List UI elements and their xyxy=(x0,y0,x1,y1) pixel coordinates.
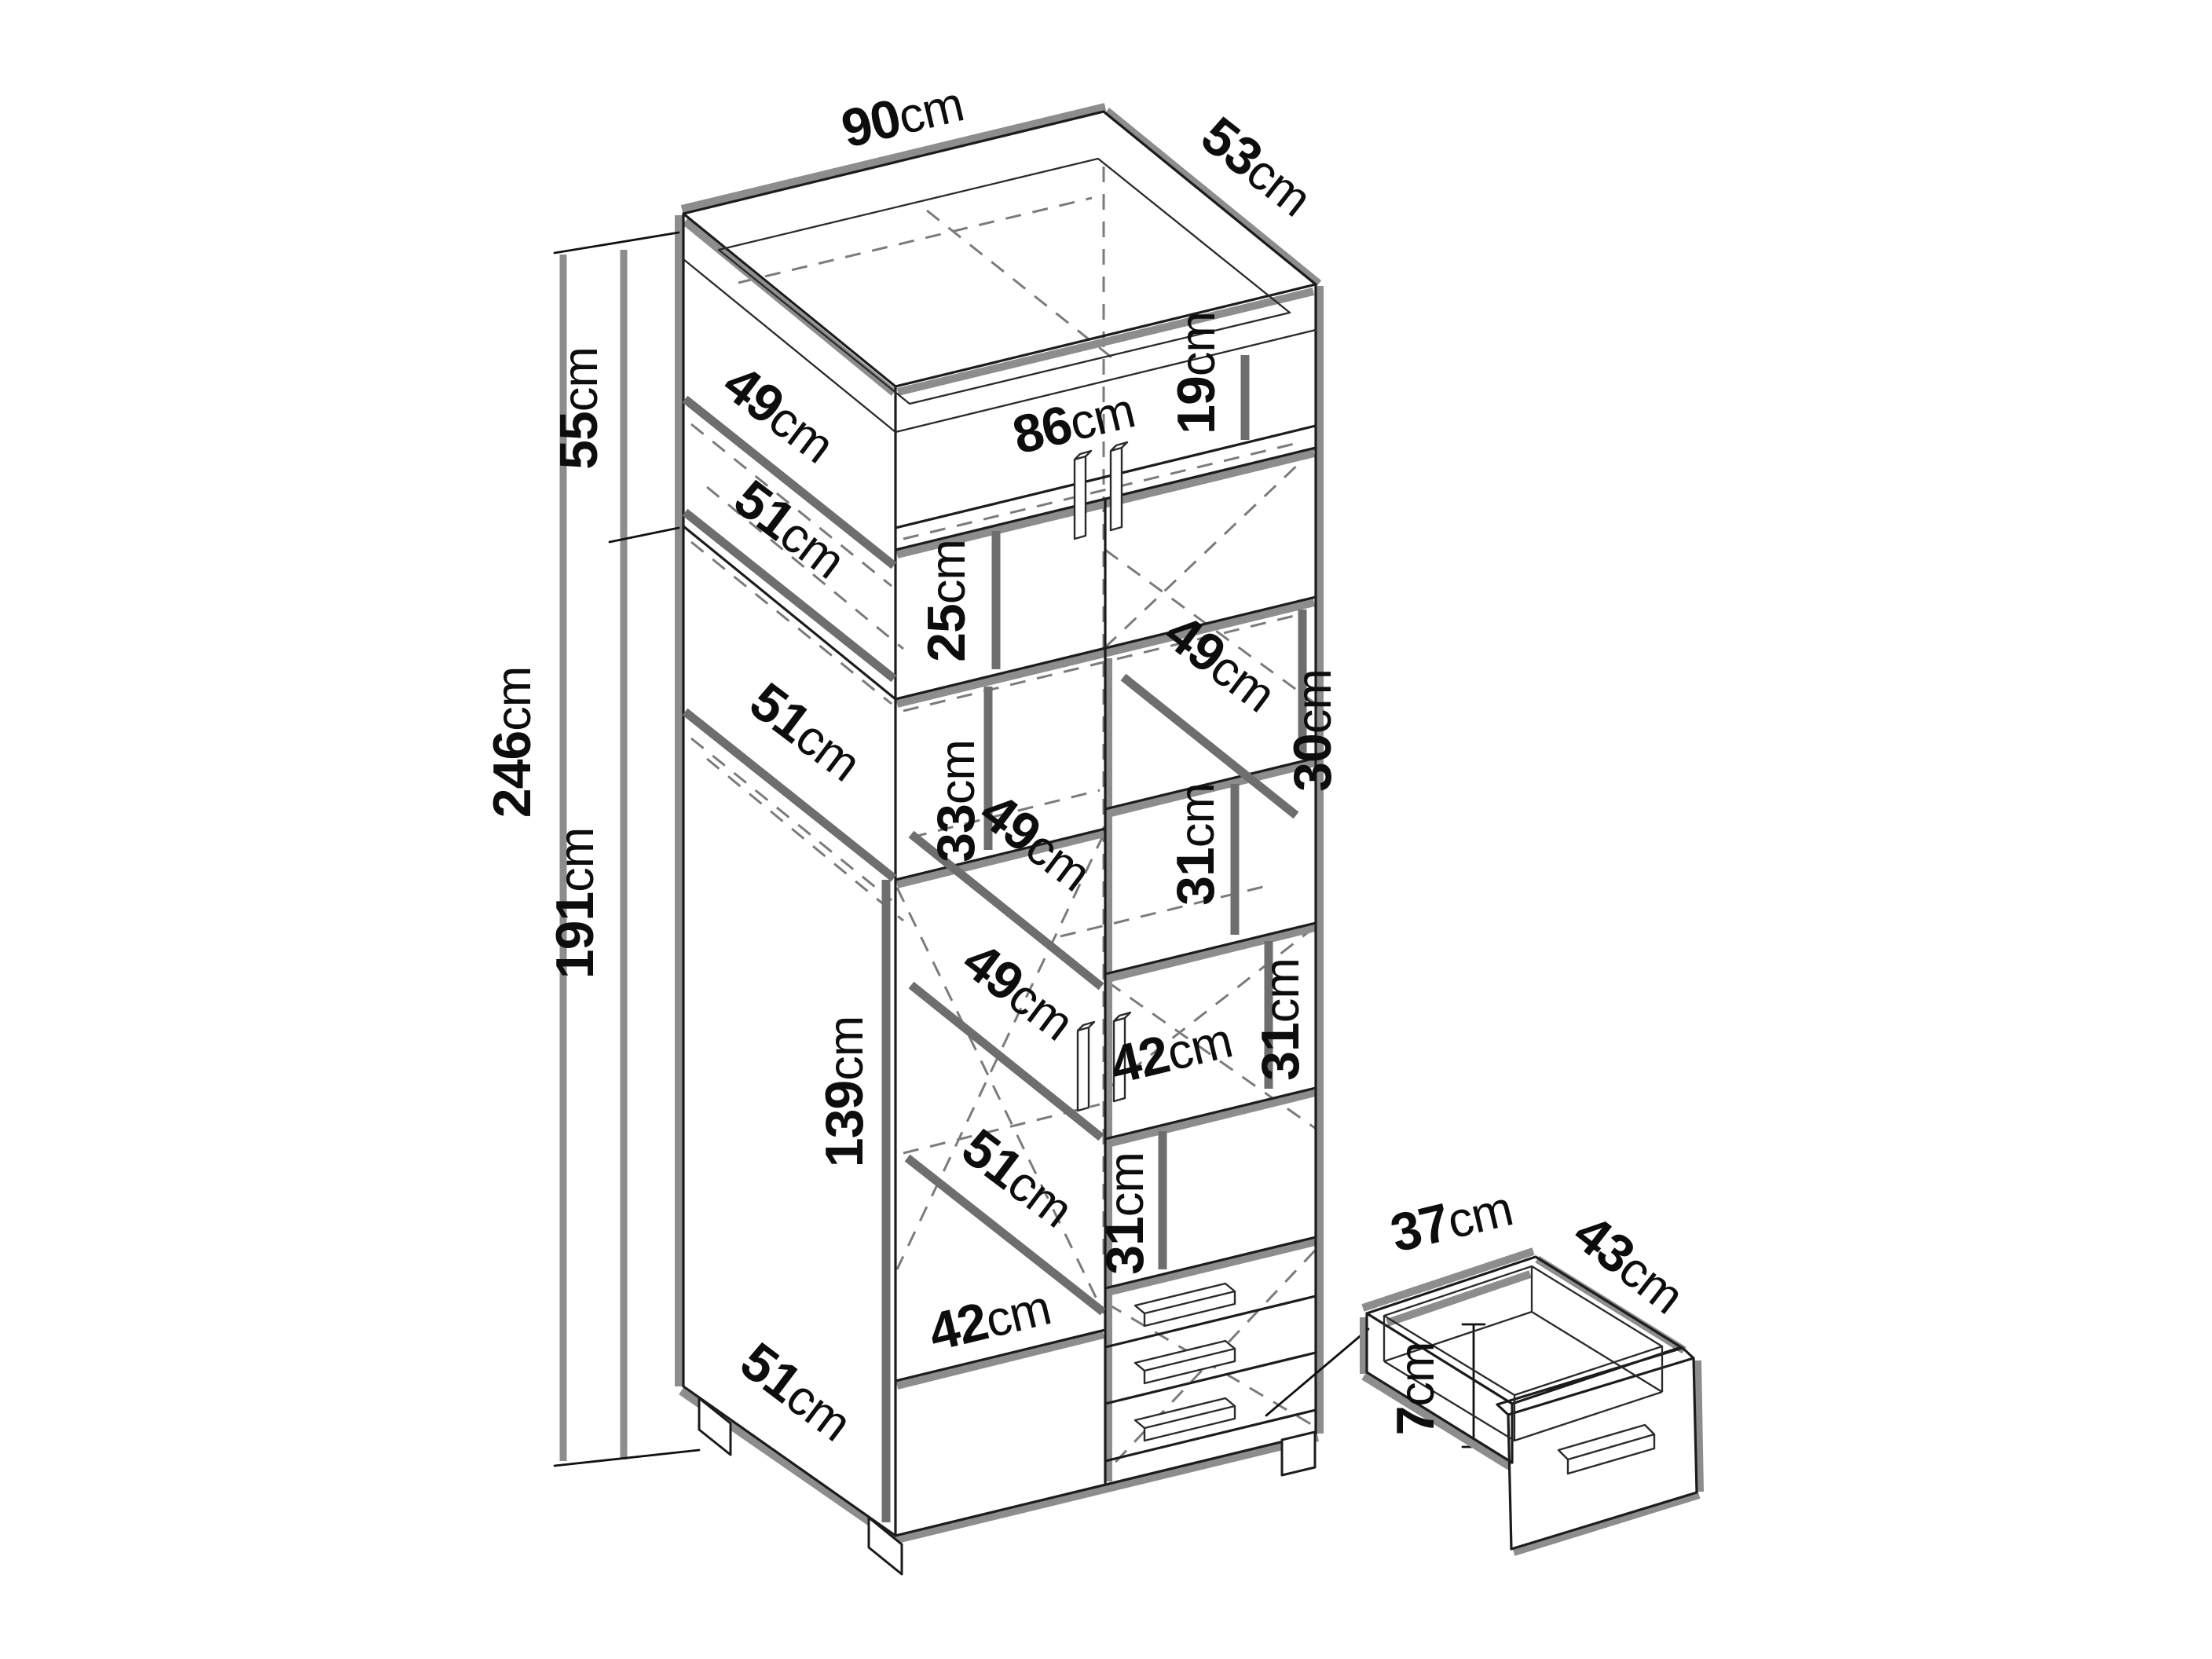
lower-door-left-handle-icon xyxy=(1078,1022,1094,1111)
label-top-section-height: 55cm xyxy=(549,347,609,470)
label-lower-section-height: 191cm xyxy=(545,828,605,979)
label-top-shelf-depth: 49cm xyxy=(712,353,846,474)
label-cabinet-depth: 53cm xyxy=(1190,105,1323,228)
dimension-labels: 90cm 53cm 55cm 246cm 191cm 49cm 51cm 86c… xyxy=(482,73,1696,1452)
diagram-canvas: 90cm 53cm 55cm 246cm 191cm 49cm 51cm 86c… xyxy=(0,0,2212,1659)
label-interior-shelf-spacing: 33cm xyxy=(926,740,986,862)
label-upper-door-height: 25cm xyxy=(917,540,976,662)
cabinet-feet xyxy=(699,1398,1315,1574)
drawer-detail-handle-icon xyxy=(1558,1425,1654,1474)
label-total-height: 246cm xyxy=(482,667,542,818)
label-drawer-width: 37cm xyxy=(1385,1177,1518,1264)
dimension-diagram: 90cm 53cm 55cm 246cm 191cm 49cm 51cm 86c… xyxy=(0,0,2212,1659)
label-shelf-spacing-31b: 31cm xyxy=(1251,958,1310,1081)
upper-door-left-handle-icon xyxy=(1075,451,1091,539)
label-right-niche-height: 30cm xyxy=(1283,669,1342,792)
label-top-niche-height: 19cm xyxy=(1166,312,1226,434)
label-shelf-spacing-31a: 31cm xyxy=(1166,783,1225,906)
label-drawer-depth: 43cm xyxy=(1562,1203,1695,1325)
label-shelf-spacing-31c: 31cm xyxy=(1095,1152,1155,1275)
label-hanging-height: 139cm xyxy=(815,1016,874,1167)
label-drawer-height: 7cm xyxy=(1386,1342,1445,1436)
